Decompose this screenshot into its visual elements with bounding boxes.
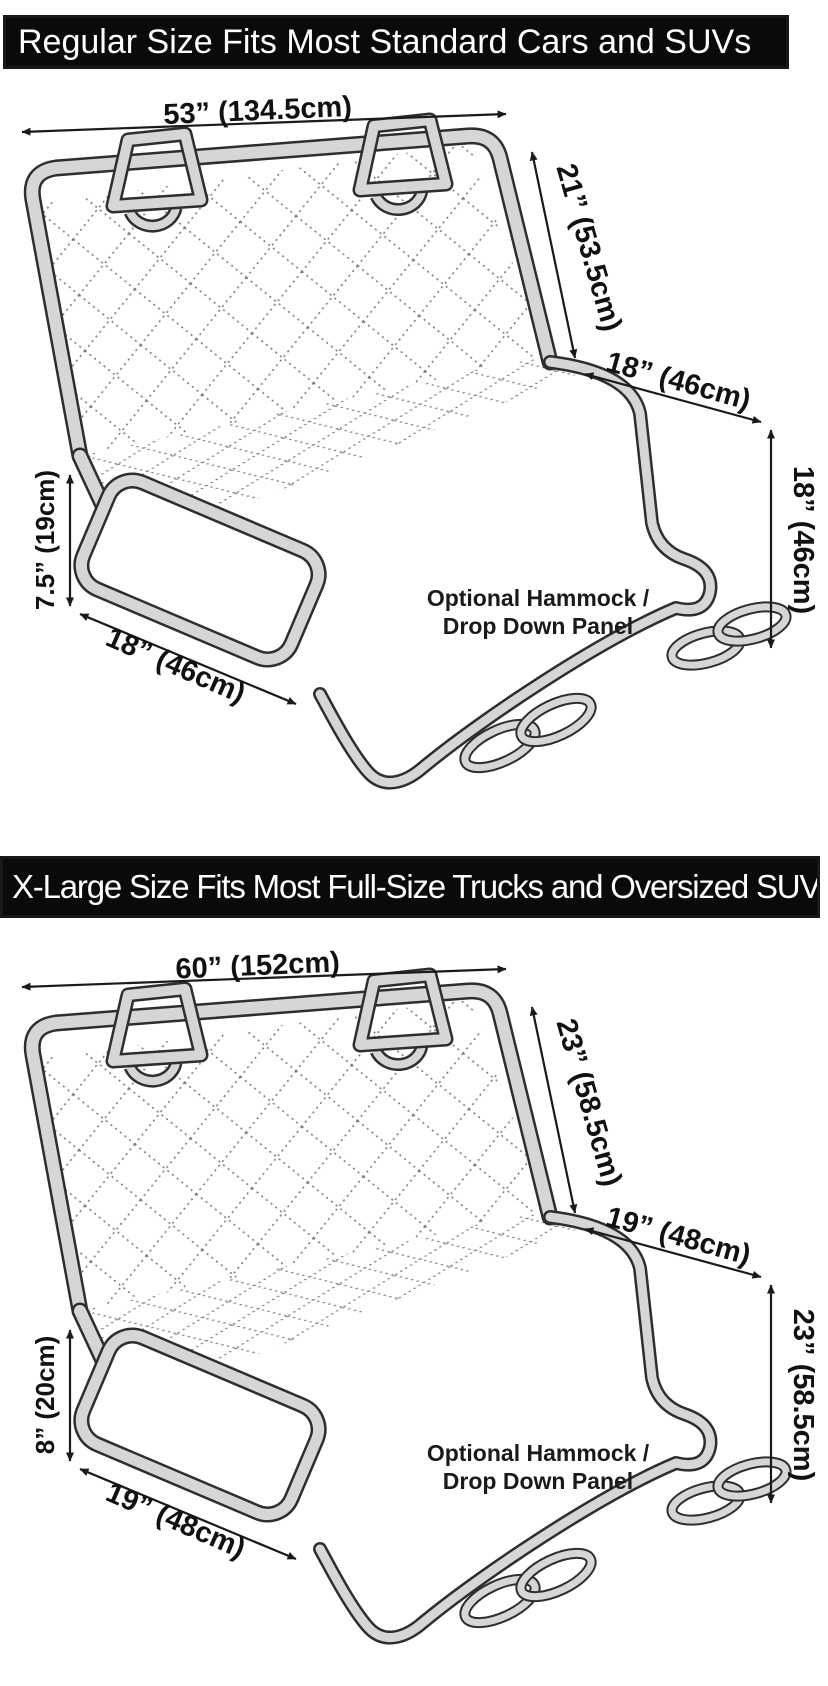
hammock-label-line2: Drop Down Panel: [443, 1468, 633, 1494]
page: Regular Size Fits Most Standard Cars and…: [0, 0, 828, 1686]
label-side-drop: 18” (46cm): [787, 466, 819, 614]
diagram-regular: 53” (134.5cm) 21” (53.5cm) 18” (46cm) 18…: [0, 78, 828, 796]
label-flap-height: 8” (20cm): [30, 1336, 60, 1455]
label-side-drop: 23” (58.5cm): [787, 1309, 819, 1482]
label-top-width: 60” (152cm): [175, 946, 341, 985]
hammock-label-line1: Optional Hammock /: [427, 585, 650, 611]
hammock-label-line1: Optional Hammock /: [427, 1440, 650, 1466]
banner-xlarge: X-Large Size Fits Most Full-Size Trucks …: [0, 856, 820, 918]
banner-xlarge-text: X-Large Size Fits Most Full-Size Trucks …: [12, 868, 820, 906]
label-seat-depth: 18” (46cm): [603, 346, 754, 416]
seat-cover-drawing: [22, 114, 790, 783]
seat-cover-drawing: [22, 969, 790, 1638]
banner-regular: Regular Size Fits Most Standard Cars and…: [3, 15, 789, 69]
label-backrest-height: 21” (53.5cm): [549, 160, 627, 335]
hammock-label-line2: Drop Down Panel: [443, 613, 633, 639]
label-seat-depth: 19” (48cm): [603, 1201, 754, 1271]
label-flap-height: 7.5” (19cm): [30, 470, 60, 610]
label-top-width: 53” (134.5cm): [163, 91, 353, 131]
diagram-xlarge: 60” (152cm) 23” (58.5cm) 19” (48cm) 23” …: [0, 933, 828, 1653]
banner-regular-text: Regular Size Fits Most Standard Cars and…: [18, 23, 751, 62]
label-backrest-height: 23” (58.5cm): [549, 1015, 627, 1190]
